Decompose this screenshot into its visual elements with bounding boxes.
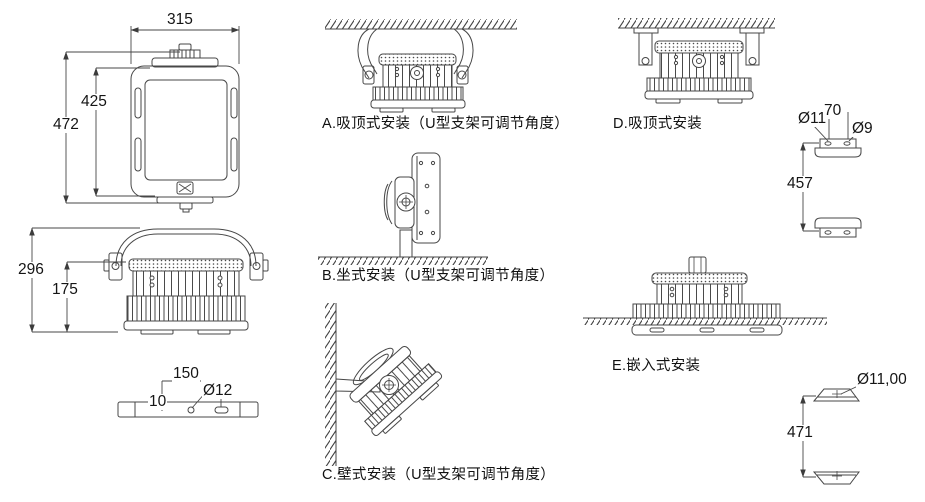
side-dim-lines [32, 228, 140, 332]
lamp-e [633, 257, 780, 318]
lamp-lens [145, 80, 227, 180]
adjust-knob [170, 50, 200, 58]
dim-side-body-height: 175 [51, 282, 79, 298]
mount-c-label: C.壁式安装（U型支架可调节角度） [322, 468, 555, 483]
mount-e-label: E.嵌入式安装 [612, 359, 700, 374]
ceiling-hatch-a [325, 19, 517, 29]
mount-a-drawing [325, 19, 517, 112]
lamp-body-side [124, 259, 248, 334]
top-knob-cap [179, 44, 191, 50]
dim-bottom-slot-dia: Ø12 [202, 383, 233, 399]
mount-slot [215, 407, 228, 413]
side-grips [135, 88, 237, 171]
mount-b-drawing [318, 153, 488, 265]
mount-e-drawing [583, 257, 827, 335]
dim-bracket-spacing: 70 [823, 103, 842, 119]
bracket-top-dims [803, 112, 855, 231]
ground-hatch-b [318, 257, 488, 265]
technical-drawing-sheet: 315 425 472 296 175 150 Ø12 10 A.吸顶式安装（U… [0, 0, 925, 502]
ceiling-hatch-d [618, 18, 775, 28]
dim-bottom-edge-offset: 10 [148, 394, 167, 410]
lamp-b [384, 153, 440, 243]
front-view-drawing [66, 26, 239, 212]
bottom-connector [157, 182, 213, 212]
bottom-view-drawing [118, 381, 258, 417]
pole [400, 230, 412, 257]
front-dim-lines [66, 26, 239, 203]
surface-hatch-e [583, 318, 827, 325]
dim-bracket-distance: 457 [786, 176, 814, 192]
dim-front-outer-height: 472 [52, 117, 80, 133]
lamp-a [371, 54, 465, 112]
mount-d-drawing [618, 18, 775, 103]
dim-bracket-hole-right: Ø9 [851, 121, 874, 137]
lamp-d [645, 41, 753, 103]
mount-d-label: D.吸顶式安装 [613, 117, 702, 132]
bracket-top-upper [815, 139, 861, 157]
mount-b-label: B.坐式安装（U型支架可调节角度） [322, 269, 554, 284]
dim-bracket2-distance: 471 [786, 425, 814, 441]
bracket-bottom-upper [814, 389, 859, 401]
dim-bracket2-hole: Ø11,00 [856, 372, 908, 388]
dim-bottom-hole-spacing: 150 [172, 366, 200, 382]
dim-side-total-height: 296 [17, 262, 45, 278]
lamp-e-base [632, 325, 782, 335]
mount-hole [188, 407, 194, 413]
dim-front-inner-height: 425 [80, 94, 108, 110]
dim-front-width: 315 [166, 12, 194, 28]
bracket-top-lower [815, 218, 861, 237]
lamp-outer-frame [131, 66, 239, 197]
mount-a-label: A.吸顶式安装（U型支架可调节角度） [322, 117, 569, 132]
bracket-bottom-lower [814, 471, 859, 484]
mount-c-drawing [325, 303, 445, 466]
wall-hatch-c [325, 303, 336, 466]
